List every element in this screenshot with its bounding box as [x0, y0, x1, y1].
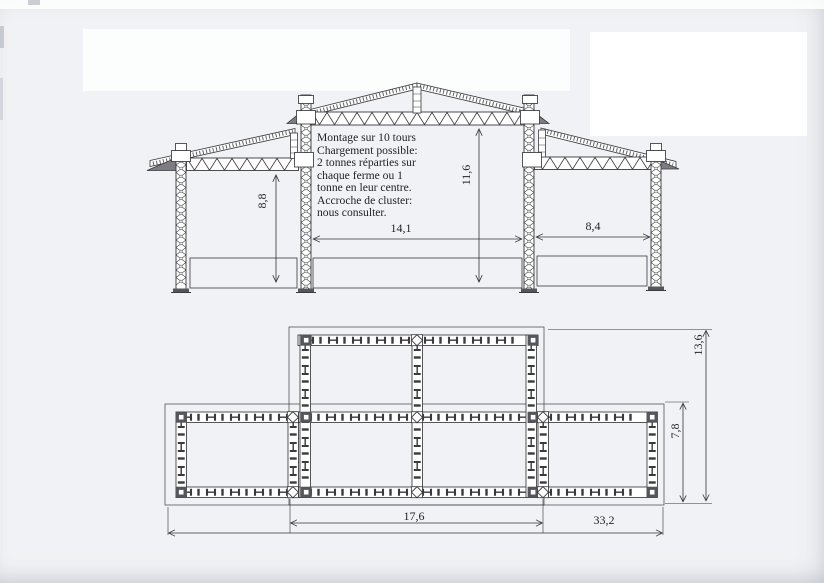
dim-label-center-width: 17,6: [404, 510, 425, 522]
note-line: Montage sur 10 tours: [317, 132, 418, 145]
stage-platforms: [190, 256, 647, 288]
technical-drawing-canvas: [0, 0, 824, 583]
note-line: 2 tonnes réparties sur: [317, 157, 418, 170]
dim-label-wing-depth: 7,8: [669, 424, 681, 439]
dim-label-total-width: 33,2: [594, 514, 615, 526]
note-line: nous consulter.: [317, 207, 418, 220]
note-line: tonne en leur centre.: [317, 182, 418, 195]
tower-base-plates: [171, 287, 666, 293]
dim-label-left-height: 8,8: [256, 194, 268, 209]
plan-view: [165, 327, 712, 536]
scanned-technical-drawing: Montage sur 10 tours Chargement possible…: [0, 0, 824, 583]
dim-label-center-height: 11,6: [460, 165, 472, 186]
dim-label-total-depth: 13,6: [692, 335, 704, 356]
dim-label-center-span: 14,1: [391, 222, 412, 234]
dim-label-right-span: 8,4: [586, 220, 601, 232]
loading-note: Montage sur 10 tours Chargement possible…: [317, 132, 418, 220]
